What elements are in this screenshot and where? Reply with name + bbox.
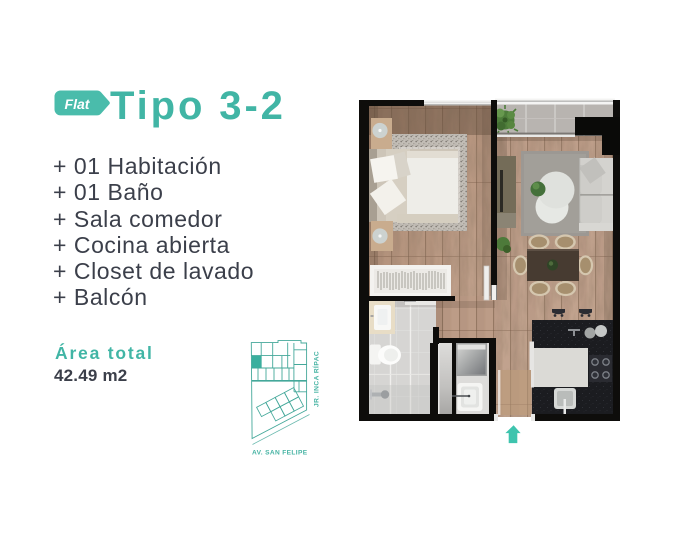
svg-text:AV. SAN FELIPE: AV. SAN FELIPE: [252, 450, 308, 457]
svg-text:Flat: Flat: [65, 95, 91, 111]
svg-text:JR. INCA RÍPAC: JR. INCA RÍPAC: [312, 351, 321, 407]
